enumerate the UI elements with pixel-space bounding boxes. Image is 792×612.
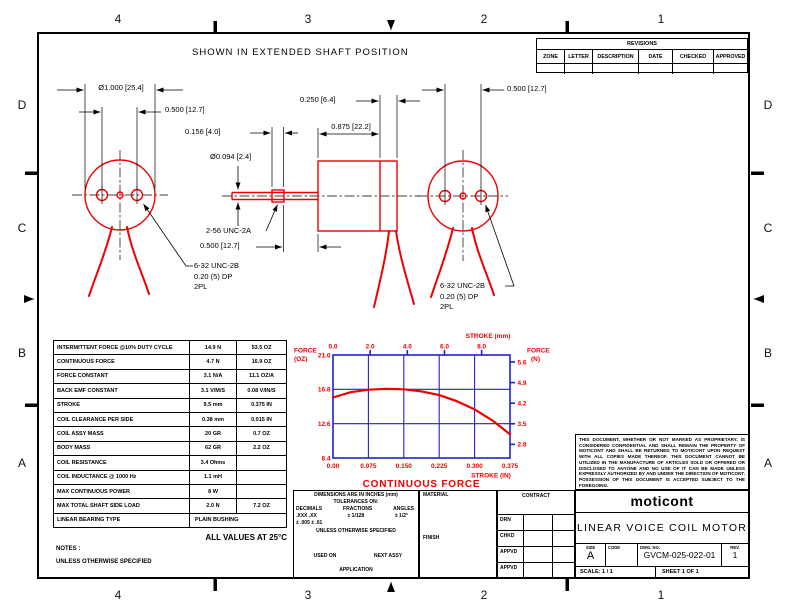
notes-unless: UNLESS OTHERWISE SPECIFIED [56, 559, 152, 566]
revisions-empty-cell [714, 64, 747, 74]
signoff-row: DRN [498, 514, 574, 530]
proprietary-notice-text: THIS DOCUMENT, WHETHER OR NOT MARKED AS … [576, 435, 748, 490]
spec-cell: 53.5 OZ [237, 341, 286, 354]
spec-cell: 0.015 IN [237, 413, 286, 426]
revisions-empty-cell [565, 64, 593, 74]
signoff-date-cell [553, 531, 574, 546]
spec-cell: FORCE CONSTANT [54, 370, 190, 383]
lead-wire [89, 227, 112, 296]
finish-label: FINISH [423, 536, 439, 542]
signoff-label: APPVD [498, 547, 524, 562]
spec-cell: INTERMITTENT FORCE @10% DUTY CYCLE [54, 341, 190, 354]
spec-cell: COIL ASSY MASS [54, 427, 190, 440]
spec-table: INTERMITTENT FORCE @10% DUTY CYCLE14.9 N… [53, 340, 287, 528]
tol-fractions: ± 1/128 [348, 514, 365, 520]
tol-col-headers: DECIMALS FRACTIONS ANGLES [296, 507, 414, 513]
spec-cell: CONTINUOUS FORCE [54, 355, 190, 368]
svg-text:21.0: 21.0 [318, 352, 331, 359]
spec-row: BODY MASS62 GR2.2 OZ [54, 442, 286, 456]
spec-cell: 9.5 mm [190, 399, 237, 412]
company-logo: moticont [576, 491, 748, 513]
spec-cell: BACK EMF CONSTANT [54, 384, 190, 397]
spec-cell: 0.7 OZ [237, 427, 286, 440]
chart-title: CONTINUOUS FORCE [363, 479, 481, 490]
spec-cell: 11.1 OZ/A [237, 370, 286, 383]
spec-row: CONTINUOUS FORCE4.7 N16.9 OZ [54, 355, 286, 369]
tol-col-angles: ANGLES [393, 507, 414, 513]
spec-row: FORCE CONSTANT3.1 N/A11.1 OZ/A [54, 370, 286, 384]
signoff-date-cell [553, 547, 574, 562]
side-view [222, 95, 420, 307]
contract-block: CONTRACT DRNCHKDAPPVDAPPVD [497, 490, 575, 578]
revisions-col-letter: LETTER [565, 50, 593, 63]
spec-cell: LINEAR BEARING TYPE [54, 514, 190, 527]
spec-cell: 62 GR [190, 442, 237, 455]
shaft-thread-note: 2-56 UNC-2A [206, 227, 251, 236]
spec-cell: 2.2 OZ [237, 442, 286, 455]
lead-wire [374, 231, 389, 307]
spec-cell: 20 GR [190, 427, 237, 440]
tol-angles: ± 1/2° [395, 514, 408, 520]
scale-sheet-row: SCALE: 1 / 1 SHEET 1 OF 1 [576, 567, 748, 577]
top-axis-label: STROKE (mm) [466, 333, 511, 340]
signoff-date-cell [553, 563, 574, 578]
spec-row: COIL RESISTANCE3.4 Ohms [54, 456, 286, 470]
notes-label: NOTES : [56, 546, 80, 553]
spec-row: COIL INDUCTANCE @ 1000 Hz1.1 mH [54, 471, 286, 485]
left-axis-label: FORCE [294, 348, 317, 355]
spec-row: MAX CONTINUOUS POWER8 W [54, 485, 286, 499]
application-label: APPLICATION [293, 568, 419, 574]
spec-cell: 7.2 OZ [237, 499, 286, 512]
svg-text:8.4: 8.4 [321, 455, 330, 462]
svg-text:0.150: 0.150 [396, 463, 413, 470]
spec-row: COIL ASSY MASS20 GR0.7 OZ [54, 427, 286, 441]
tol-decimals: .XXX .XX [296, 514, 317, 520]
tap-note-line: 0.20 (5) DP [194, 272, 239, 283]
force-stroke-chart: 0.02.04.06.08.0STROKE (mm)0.000.0750.150… [294, 333, 550, 490]
signoff-label: APPVD [498, 563, 524, 578]
signoff-label: DRN [498, 515, 524, 530]
signoff-date-cell [553, 515, 574, 530]
scale-value: SCALE: 1 / 1 [576, 567, 656, 577]
tol-decimals-tol: ± .005 ± .01 [296, 521, 322, 527]
signoff-name-cell [524, 547, 553, 562]
revisions-col-date: DATE [639, 50, 673, 63]
revisions-col-zone: ZONE [537, 50, 565, 63]
spec-cell: 3.1 N/A [190, 370, 237, 383]
contract-label: CONTRACT [498, 491, 574, 514]
spec-cell: 2.0 N [190, 499, 237, 512]
spec-cell [237, 456, 286, 469]
spec-cell: MAX TOTAL SHAFT SIDE LOAD [54, 499, 190, 512]
left-end-view [57, 84, 193, 296]
tap-note-line: 0.20 (5) DP [440, 292, 485, 303]
svg-text:6.0: 6.0 [440, 344, 449, 351]
spec-cell [237, 485, 286, 498]
signoff-row: APPVD [498, 546, 574, 562]
tol-line6: UNLESS OTHERWISE SPECIFIED [293, 529, 419, 535]
svg-text:0.0: 0.0 [328, 344, 337, 351]
tap-note-line: 2PL [440, 302, 485, 313]
lead-wire [396, 231, 414, 304]
signoff-name-cell [524, 515, 553, 530]
tap-note-right: 6-32 UNC-2B 0.20 (5) DP 2PL [440, 281, 485, 313]
revisions-empty-cell [673, 64, 714, 74]
revisions-col-approved: APPROVED [714, 50, 747, 63]
revisions-col-checked: CHECKED [673, 50, 714, 63]
spec-row: COIL CLEARANCE PER SIDE0.38 mm0.015 IN [54, 413, 286, 427]
revisions-empty-cell [639, 64, 673, 74]
svg-text:0.075: 0.075 [360, 463, 377, 470]
drawing-title: LINEAR VOICE COIL MOTOR [576, 513, 748, 544]
tap-note-line: 2PL [194, 282, 239, 293]
lead-wire [127, 227, 149, 294]
engineering-drawing-sheet: 4 3 2 1 4 3 2 1 D C B A D C B A [0, 0, 792, 612]
revisions-table: REVISIONS ZONELETTERDESCRIPTIONDATECHECK… [536, 38, 748, 73]
spec-row: LINEAR BEARING TYPEPLAIN BUSHING [54, 514, 286, 527]
spec-cell: COIL RESISTANCE [54, 456, 190, 469]
spec-cell: 4.7 N [190, 355, 237, 368]
spec-cell: 1.1 mH [190, 471, 237, 484]
spec-cell: 0.375 IN [237, 399, 286, 412]
spec-cell: BODY MASS [54, 442, 190, 455]
spec-cell: 0.38 mm [190, 413, 237, 426]
next-assy-label: NEXT ASSY [357, 554, 419, 560]
spec-cell: 0.08 V/IN/S [237, 384, 286, 397]
spec-cell: PLAIN BUSHING [190, 514, 286, 527]
sheet-value: SHEET 1 OF 1 [656, 567, 748, 577]
spec-cell: 8 W [190, 485, 237, 498]
right-axis-label: FORCE [527, 348, 550, 355]
spec-row: MAX TOTAL SHAFT SIDE LOAD2.0 N7.2 OZ [54, 499, 286, 513]
tol-line2: TOLERANCES ON: [293, 500, 419, 506]
continuous-force-curve [333, 389, 510, 434]
size-code-dwg-row: SIZE A CODE DWG. NO. GVCM-025-022-01 REV… [576, 544, 748, 567]
signoff-row: APPVD [498, 562, 574, 578]
signoff-name-cell [524, 563, 553, 578]
tap-note-line: 6-32 UNC-2B [194, 261, 239, 272]
revisions-empty-row [537, 64, 747, 74]
revisions-header-row: ZONELETTERDESCRIPTIONDATECHECKEDAPPROVED [537, 50, 747, 64]
dim-thread-length: 0.156 [4.0] [185, 128, 220, 137]
signoff-name-cell [524, 531, 553, 546]
material-block [419, 490, 497, 578]
tol-line1: DIMENSIONS ARE IN INCHES (mm) [293, 493, 419, 499]
svg-text:2.8: 2.8 [518, 442, 527, 449]
spec-cell [237, 471, 286, 484]
svg-text:12.6: 12.6 [318, 421, 331, 428]
spec-cell: 16.9 OZ [237, 355, 286, 368]
dim-hole-spacing-right: 0.500 [12.7] [507, 85, 547, 94]
right-end-view [418, 84, 514, 297]
title-block: moticont LINEAR VOICE COIL MOTOR SIZE A … [575, 490, 749, 578]
tol-col-fractions: FRACTIONS [343, 507, 372, 513]
signoff-rows: DRNCHKDAPPVDAPPVD [498, 514, 574, 578]
spec-cell: COIL CLEARANCE PER SIDE [54, 413, 190, 426]
tol-col-decimals: DECIMALS [296, 507, 322, 513]
dim-shaft-exposed: 0.500 [12.7] [200, 242, 240, 251]
used-on-label: USED ON [293, 554, 357, 560]
svg-text:2.0: 2.0 [366, 344, 375, 351]
spec-cell: COIL INDUCTANCE @ 1000 Hz [54, 471, 190, 484]
dim-front-plate: 0.250 [6.4] [300, 96, 335, 105]
svg-text:4.9: 4.9 [518, 380, 527, 387]
tol-values: .XXX .XX ± 1/128 ± 1/2° [296, 514, 408, 520]
signoff-label: CHKD [498, 531, 524, 546]
revisions-title: REVISIONS [537, 39, 747, 50]
revisions-empty-cell [593, 64, 639, 74]
revisions-empty-cell [537, 64, 565, 74]
dim-body-length: 0.875 [22.2] [322, 123, 380, 132]
svg-text:0.300: 0.300 [466, 463, 483, 470]
spec-cell: 14.9 N [190, 341, 237, 354]
svg-text:4.2: 4.2 [518, 400, 527, 407]
svg-text:8.0: 8.0 [477, 344, 486, 351]
spec-cell: 3.1 V/M/S [190, 384, 237, 397]
size-value: A [587, 550, 594, 563]
svg-text:(OZ): (OZ) [294, 356, 307, 363]
material-label: MATERIAL [423, 493, 448, 499]
tap-note-left: 6-32 UNC-2B 0.20 (5) DP 2PL [194, 261, 239, 293]
spec-row: STROKE9.5 mm0.375 IN [54, 399, 286, 413]
revisions-col-description: DESCRIPTION [593, 50, 639, 63]
spec-cell: 3.4 Ohms [190, 456, 237, 469]
svg-text:4.0: 4.0 [403, 344, 412, 351]
svg-text:16.8: 16.8 [318, 387, 331, 394]
rev-value: 1 [733, 550, 738, 560]
proprietary-notice-block: THIS DOCUMENT, WHETHER OR NOT MARKED AS … [575, 434, 749, 490]
svg-text:5.6: 5.6 [518, 359, 527, 366]
svg-text:0.00: 0.00 [327, 463, 340, 470]
dim-hole-spacing-left: 0.500 [12.7] [165, 106, 205, 115]
spec-row: BACK EMF CONSTANT3.1 V/M/S0.08 V/IN/S [54, 384, 286, 398]
dwg-no-value: GVCM-025-022-01 [644, 550, 716, 561]
tap-note-line: 6-32 UNC-2B [440, 281, 485, 292]
svg-text:0.225: 0.225 [431, 463, 448, 470]
dim-shaft-diameter: Ø0.094 [2.4] [210, 153, 251, 162]
code-label: CODE [606, 544, 620, 550]
all-values-note: ALL VALUES AT 25°C [155, 533, 287, 542]
dim-outer-diameter: Ø1.000 [25.4] [88, 84, 154, 93]
svg-text:3.5: 3.5 [518, 421, 527, 428]
spec-cell: MAX CONTINUOUS POWER [54, 485, 190, 498]
drawing-heading: SHOWN IN EXTENDED SHAFT POSITION [192, 48, 409, 59]
spec-row: INTERMITTENT FORCE @10% DUTY CYCLE14.9 N… [54, 341, 286, 355]
svg-text:(N): (N) [531, 356, 540, 363]
svg-text:0.375: 0.375 [502, 463, 519, 470]
signoff-row: CHKD [498, 530, 574, 546]
spec-cell: STROKE [54, 399, 190, 412]
